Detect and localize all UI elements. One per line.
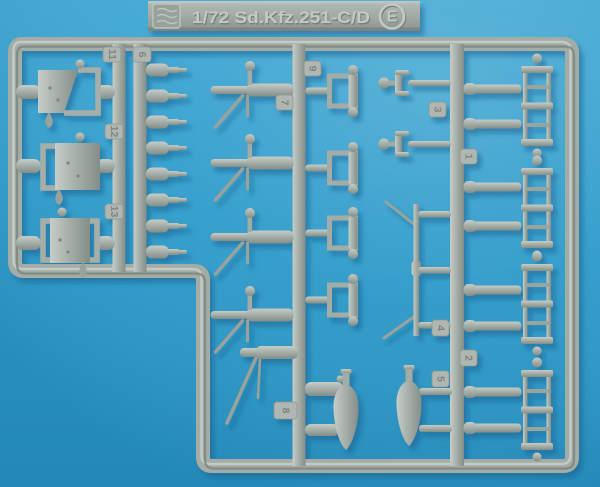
svg-text:3: 3	[432, 107, 444, 113]
gate	[16, 85, 41, 99]
gate	[16, 159, 41, 173]
svg-text:13: 13	[108, 206, 120, 218]
gate	[418, 211, 451, 218]
svg-text:9: 9	[307, 66, 319, 72]
ball-knob	[76, 60, 85, 69]
ball-knob	[58, 208, 67, 217]
svg-text:8: 8	[280, 408, 292, 414]
svg-text:2: 2	[463, 355, 475, 361]
svg-text:1/72 Sd.Kfz.251-C/D: 1/72 Sd.Kfz.251-C/D	[192, 8, 370, 27]
tag-12: 12	[105, 124, 123, 139]
tag-6: 6	[133, 47, 151, 62]
svg-text:E: E	[387, 8, 398, 25]
stowage-cylinder-lower	[305, 424, 339, 436]
tag-8: 8	[274, 402, 297, 419]
barrel-runner	[134, 44, 147, 272]
tag-13: 13	[105, 204, 123, 219]
tag-7: 7	[276, 95, 293, 110]
svg-text:1: 1	[463, 154, 475, 160]
label-bar: 1/72 Sd.Kfz.251-C/D 1/72 Sd.Kfz.251-C/D …	[148, 1, 420, 31]
svg-text:6: 6	[136, 52, 148, 58]
svg-text:12: 12	[108, 126, 120, 138]
tag-3: 3	[429, 102, 446, 117]
plate-runner	[113, 44, 126, 272]
sprue-photo: 11 6 12 13 9 7	[0, 0, 600, 487]
gate	[419, 388, 452, 395]
gate	[419, 425, 452, 432]
svg-text:5: 5	[435, 376, 447, 382]
ball-knob	[76, 133, 85, 142]
tag-5: 5	[432, 371, 449, 387]
tag-1: 1	[460, 149, 477, 164]
tag-11: 11	[103, 47, 121, 62]
svg-text:4: 4	[435, 325, 447, 331]
gate	[16, 236, 41, 250]
manufacturer-logo	[153, 4, 180, 28]
svg-text:7: 7	[279, 100, 291, 106]
tag-2: 2	[460, 350, 477, 366]
gate	[418, 267, 451, 274]
scale-label: 1/72 Sd.Kfz.251-C/D 1/72 Sd.Kfz.251-C/D	[192, 8, 371, 28]
main-runner	[450, 44, 464, 466]
sprue-photo-canvas: 11 6 12 13 9 7	[0, 0, 600, 487]
tag-4: 4	[432, 320, 449, 336]
svg-text:11: 11	[106, 49, 118, 60]
tag-9: 9	[304, 61, 321, 76]
